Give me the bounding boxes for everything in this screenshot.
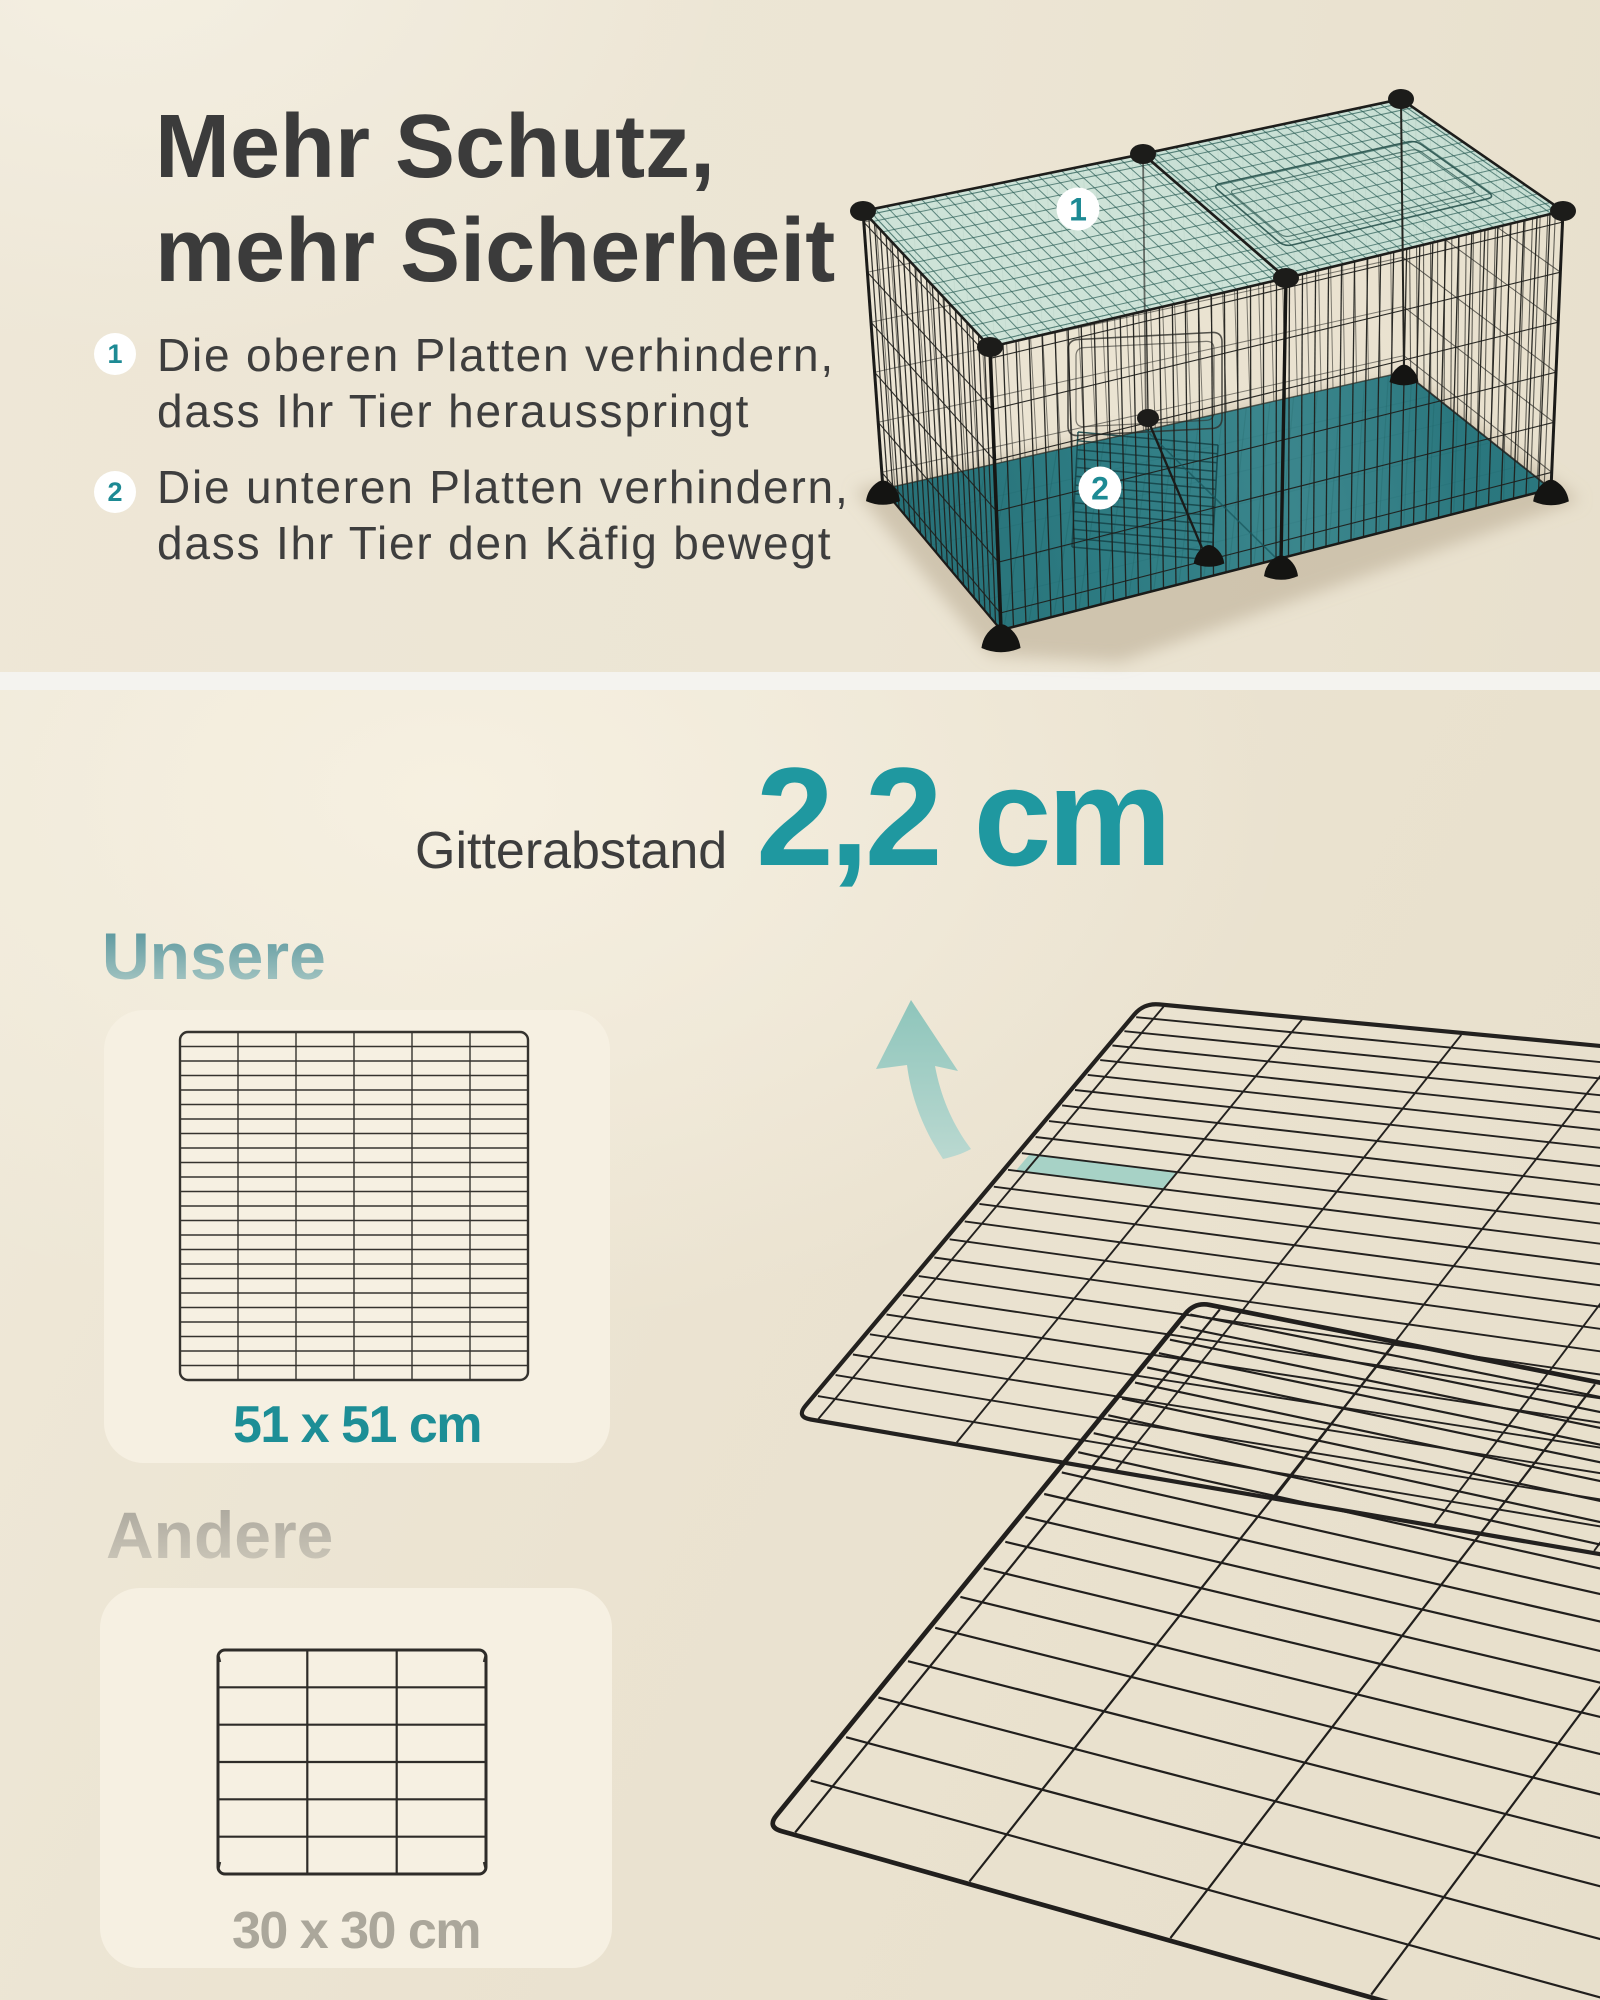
svg-text:2: 2 [1091,471,1109,507]
svg-text:1: 1 [1069,192,1087,228]
